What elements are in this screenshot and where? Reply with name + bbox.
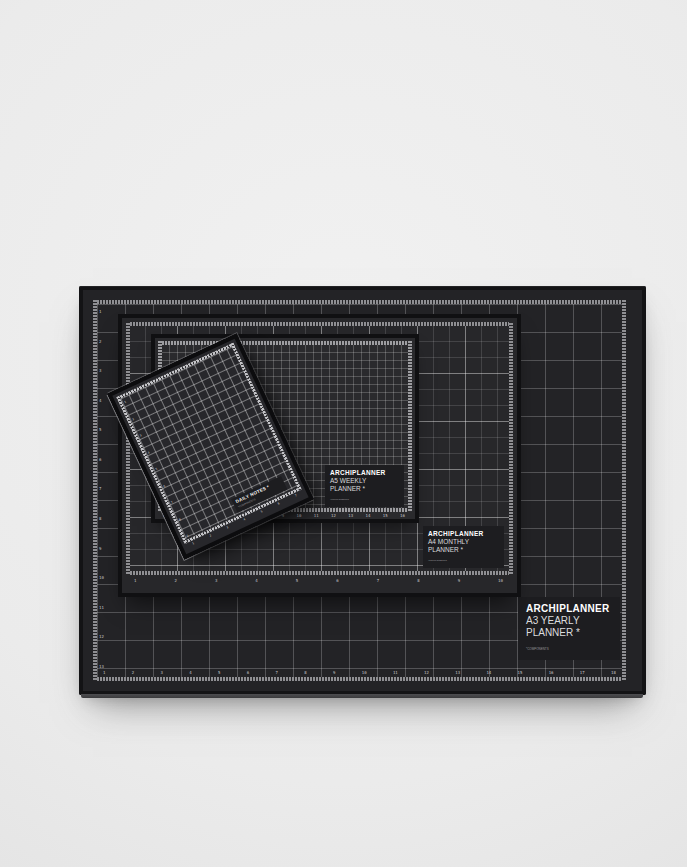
tick-number: 1: [99, 310, 104, 314]
tick-number: 5: [260, 510, 263, 513]
tick-number: 8: [179, 517, 185, 522]
tick-number: 14: [366, 514, 371, 518]
tick-number: 4: [147, 450, 153, 455]
tick-number: 16: [549, 671, 554, 675]
tick-number: 7: [276, 671, 278, 675]
a3-ruler-numbers-left: 12345678910111213: [99, 310, 104, 669]
tick-number: 6: [277, 502, 280, 505]
tick-number: 14: [486, 671, 491, 675]
a5-line2-text: PLANNER *: [330, 485, 404, 493]
a4-label: ARCHIPLANNER A4 MONTHLY PLANNER * *COMPO…: [423, 526, 504, 568]
tick-number: 7: [171, 500, 177, 505]
tick-number: 5: [155, 466, 161, 471]
tick-number: 11: [314, 514, 319, 518]
tick-number: 7: [377, 579, 379, 583]
a4-ruler-strip-bottom: [126, 571, 513, 575]
tick-number: 10: [297, 514, 302, 518]
tick-number: 2: [209, 534, 212, 537]
tick-number: 10: [362, 671, 367, 675]
a5-ruler-strip-right: [408, 341, 412, 512]
tick-number: 16: [400, 514, 405, 518]
a5-footnote-text: *COMPONENTS: [330, 496, 404, 504]
a3-brand-text: ARCHIPLANNER: [526, 603, 620, 615]
tick-number: 15: [518, 671, 523, 675]
a4-line2-text: PLANNER *: [428, 546, 504, 554]
tick-number: 4: [189, 671, 191, 675]
tick-number: 3: [99, 369, 104, 373]
a3-ruler-strip-bottom: [93, 677, 626, 681]
tick-number: 1: [124, 399, 130, 404]
tick-number: 7: [99, 487, 104, 491]
tick-number: 5: [99, 428, 104, 432]
tick-number: 13: [348, 514, 353, 518]
tick-number: 6: [247, 671, 249, 675]
a3-ruler-numbers-bottom: 123456789101112131415161718: [103, 671, 616, 675]
tick-number: 3: [215, 579, 217, 583]
a3-ruler-strip-left: [93, 300, 97, 681]
tick-number: 7: [295, 494, 298, 497]
tick-number: 5: [218, 671, 220, 675]
tick-number: 9: [458, 579, 460, 583]
a3-ruler-strip-top: [93, 300, 626, 304]
tick-number: 13: [99, 665, 104, 669]
a5-label: ARCHIPLANNER A5 WEEKLY PLANNER * *COMPON…: [325, 465, 404, 507]
tick-number: 3: [161, 671, 163, 675]
tick-number: 17: [580, 671, 585, 675]
tick-number: 6: [336, 579, 338, 583]
tick-number: 3: [139, 433, 145, 438]
a5-brand-text: ARCHIPLANNER: [330, 469, 404, 477]
a3-line1-text: A3 YEARLY: [526, 615, 620, 627]
a5-line1-text: A5 WEEKLY: [330, 477, 404, 485]
a4-ruler-strip-right: [509, 322, 513, 575]
a4-brand-text: ARCHIPLANNER: [428, 530, 504, 538]
a4-ruler-strip-left: [126, 322, 130, 575]
tick-number: 12: [99, 635, 104, 639]
a3-line2-text: PLANNER *: [526, 627, 620, 639]
tick-number: 8: [417, 579, 419, 583]
a3-mat-side-edge: [81, 694, 643, 698]
tick-number: 10: [498, 579, 503, 583]
a3-ruler-strip-right: [622, 300, 626, 681]
tick-number: 12: [331, 514, 336, 518]
tick-number: 2: [99, 340, 104, 344]
tick-number: 18: [611, 671, 616, 675]
tick-number: 5: [296, 579, 298, 583]
tick-number: 11: [393, 671, 398, 675]
tick-number: 12: [424, 671, 429, 675]
tick-number: 9: [282, 514, 284, 518]
product-photo-scene: 123456789101112131415161718 123456789101…: [0, 0, 687, 867]
a4-ruler-strip-top: [126, 322, 513, 326]
tick-number: 3: [226, 526, 229, 529]
tick-number: 8: [304, 671, 306, 675]
tick-number: 9: [333, 671, 335, 675]
tick-number: 1: [134, 579, 136, 583]
tick-number: 2: [132, 416, 138, 421]
tick-number: 2: [132, 671, 134, 675]
a3-label: ARCHIPLANNER A3 YEARLY PLANNER * *COMPON…: [518, 597, 620, 660]
tick-number: 11: [99, 606, 104, 610]
tick-number: 15: [383, 514, 388, 518]
tick-number: 6: [163, 483, 169, 488]
tick-number: 4: [255, 579, 257, 583]
tick-number: 8: [99, 517, 104, 521]
tick-number: 9: [99, 547, 104, 551]
a3-footnote-text: *COMPONENTS: [526, 643, 620, 655]
tick-number: 1: [103, 671, 105, 675]
tick-number: 13: [455, 671, 460, 675]
a4-ruler-numbers-bottom: 12345678910: [134, 579, 503, 583]
tick-number: 4: [243, 518, 246, 521]
tick-number: 1: [192, 542, 195, 545]
tick-number: 2: [174, 579, 176, 583]
tick-number: 10: [99, 576, 104, 580]
tick-number: 4: [99, 399, 104, 403]
a4-line1-text: A4 MONTHLY: [428, 538, 504, 546]
tick-number: 6: [99, 458, 104, 462]
a5-ruler-strip-top: [158, 341, 412, 345]
a4-footnote-text: *COMPONENTS: [428, 557, 504, 565]
